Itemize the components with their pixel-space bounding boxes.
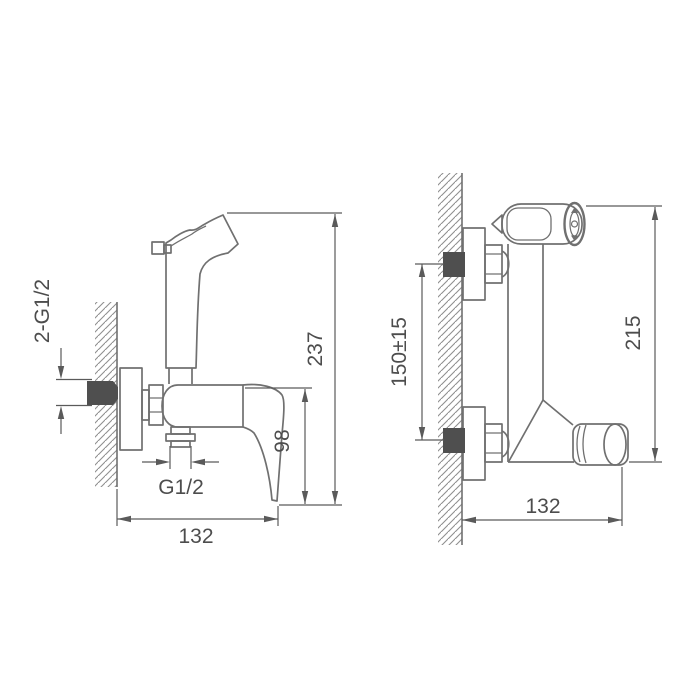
dim-150-15-label: 150±15 bbox=[388, 317, 411, 387]
dim-215-label: 215 bbox=[622, 315, 645, 350]
dim-98-label: 98 bbox=[271, 429, 294, 452]
faucet-dimension-drawing: 2-G1/2 237 98 G1/2 132 bbox=[0, 0, 700, 700]
inlet-pipe-block bbox=[87, 381, 118, 405]
inlet-pipe-block-top bbox=[443, 252, 465, 277]
dim-inlet-thread-label: 2-G1/2 bbox=[31, 279, 54, 343]
dim-outlet-thread-label: G1/2 bbox=[158, 476, 204, 499]
dim-237-label: 237 bbox=[304, 331, 327, 366]
inlet-pipe-block-bottom bbox=[443, 428, 465, 453]
technical-drawing-page: 2-G1/2 237 98 G1/2 132 bbox=[0, 0, 700, 700]
dim-132-right-label: 132 bbox=[525, 495, 560, 518]
dim-132-left-label: 132 bbox=[178, 525, 213, 548]
wall-section-right bbox=[438, 173, 462, 545]
